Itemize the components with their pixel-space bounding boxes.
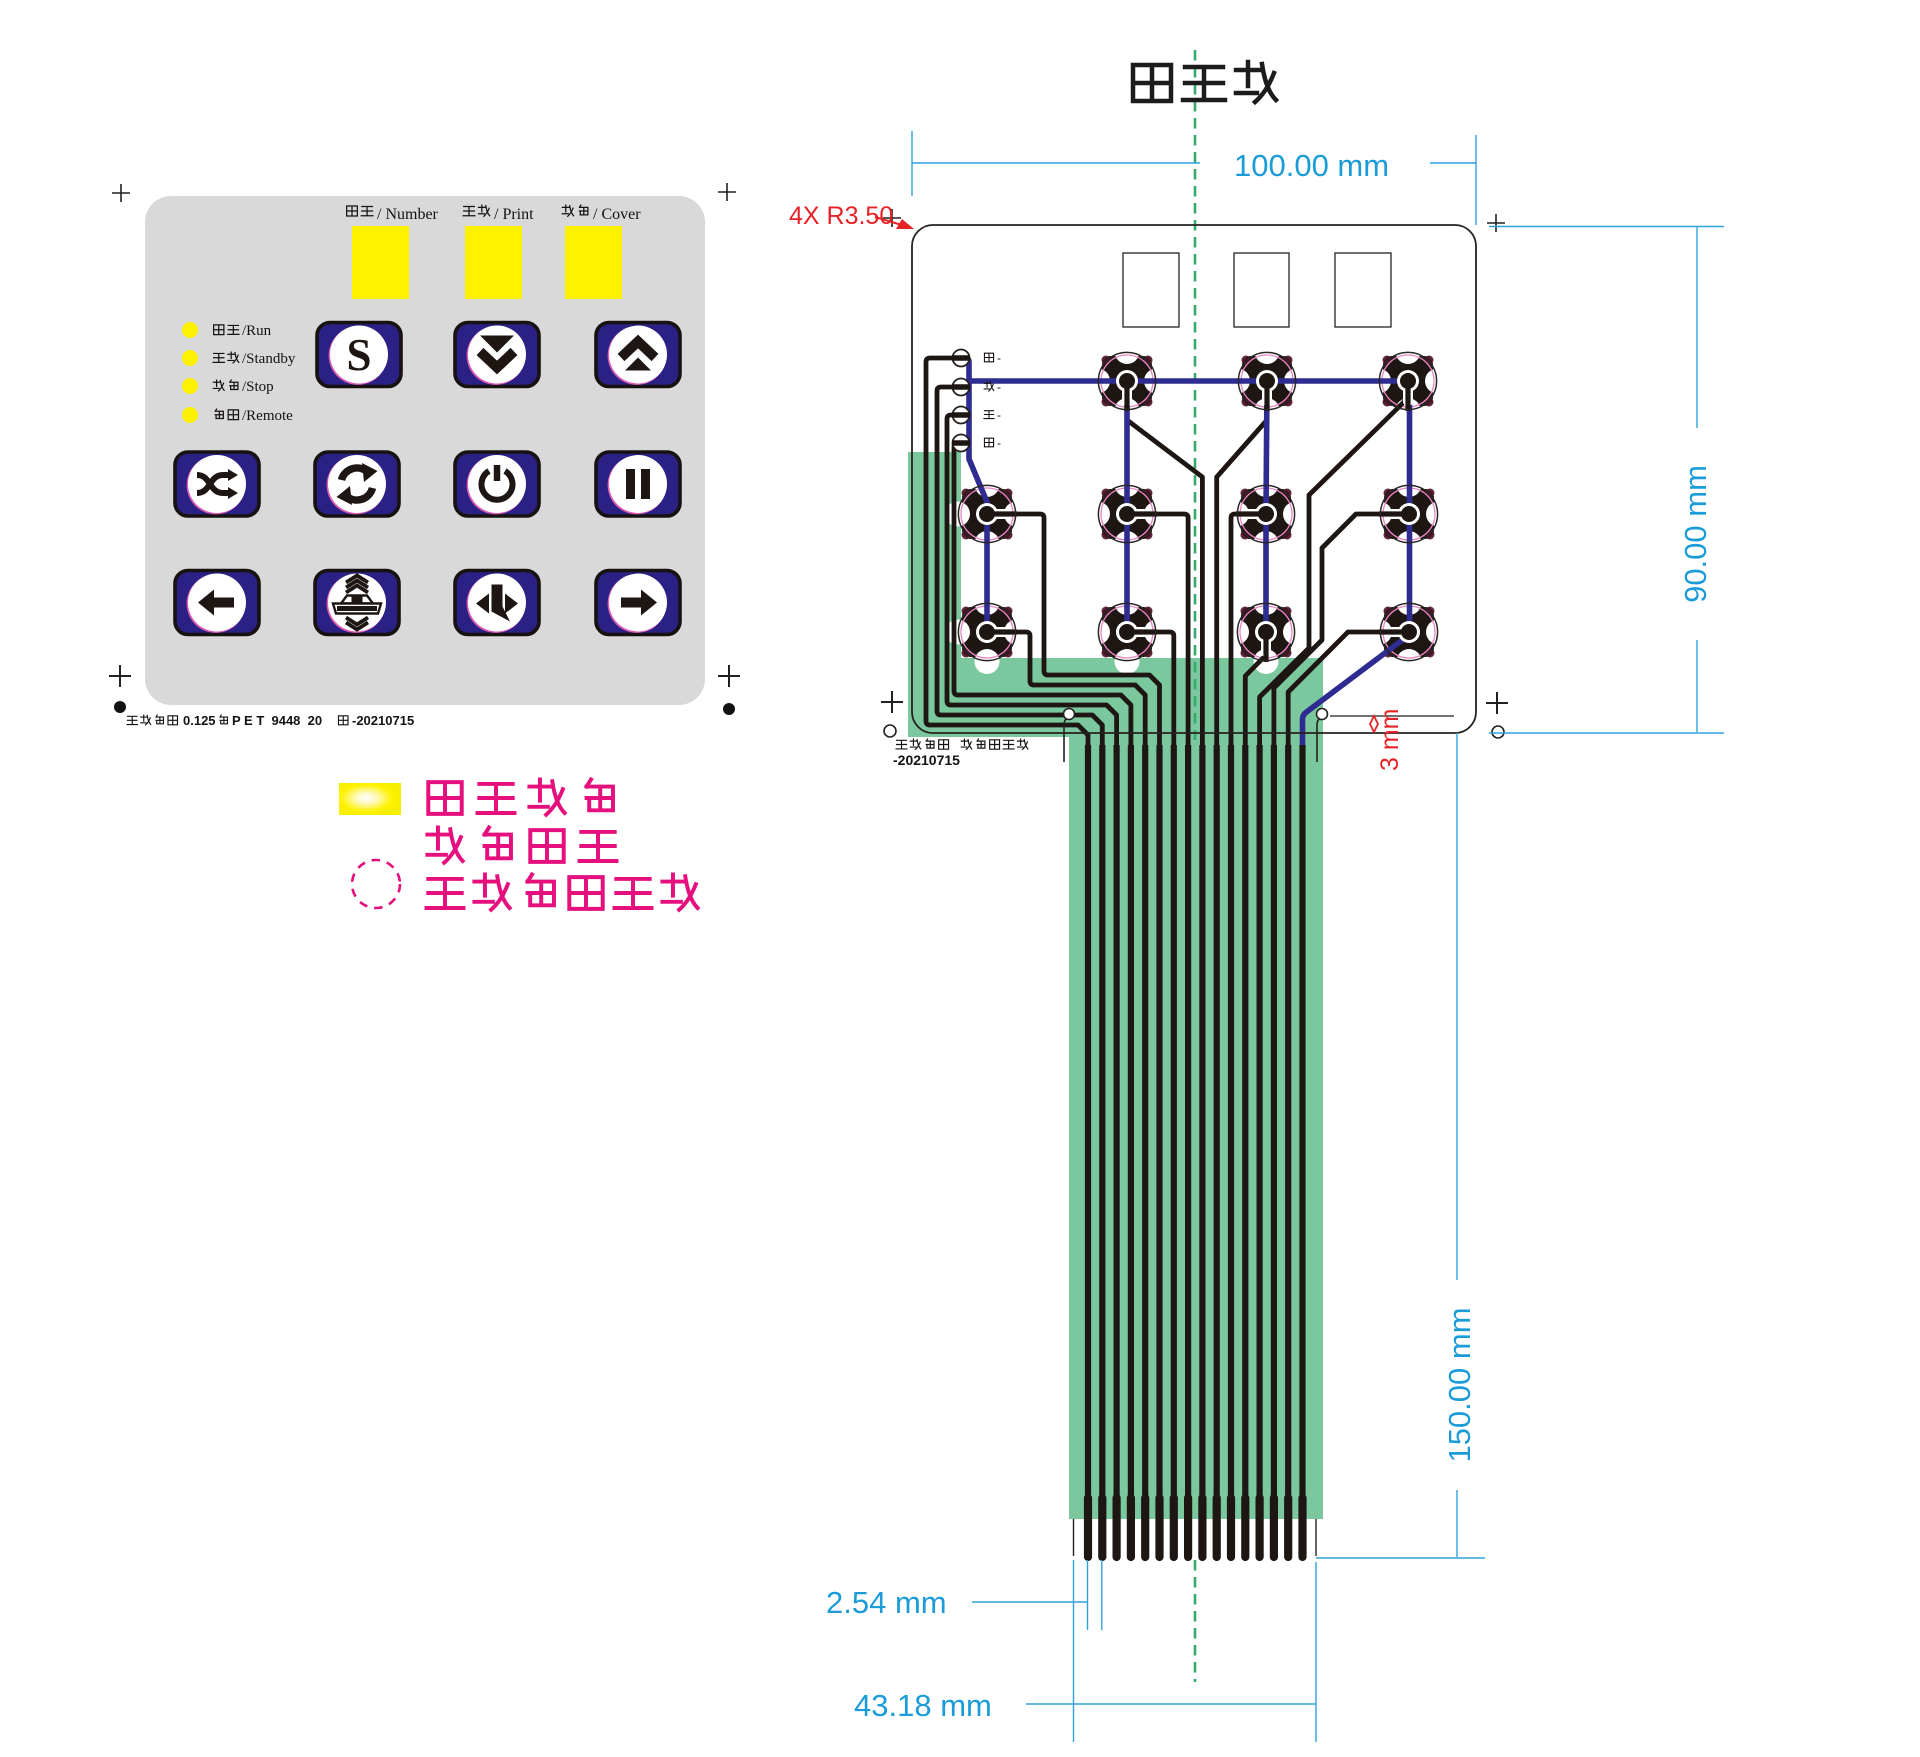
svg-text:-20210715: -20210715 xyxy=(352,713,414,728)
svg-text:/ Print: / Print xyxy=(494,206,534,223)
svg-text:-20210715: -20210715 xyxy=(893,752,960,768)
svg-text:/Run: /Run xyxy=(242,323,272,339)
svg-text:3 mm: 3 mm xyxy=(1376,709,1404,772)
svg-text:43.18 mm: 43.18 mm xyxy=(854,1688,992,1723)
svg-text:2.54 mm: 2.54 mm xyxy=(826,1585,947,1620)
svg-text:-: - xyxy=(997,351,1001,365)
svg-text:-: - xyxy=(997,436,1001,450)
svg-text:90.00 mm: 90.00 mm xyxy=(1678,465,1713,603)
svg-text:/ Number: / Number xyxy=(377,206,439,223)
svg-text:/ Cover: / Cover xyxy=(593,206,641,223)
svg-text:P E T 9448 20: P E T 9448 20 xyxy=(232,713,322,728)
svg-text:0.125: 0.125 xyxy=(183,713,216,728)
svg-text:150.00 mm: 150.00 mm xyxy=(1442,1307,1477,1462)
svg-text:/Stop: /Stop xyxy=(242,379,274,395)
svg-text:-: - xyxy=(997,380,1001,394)
svg-text:-: - xyxy=(997,408,1001,422)
svg-text:100.00 mm: 100.00 mm xyxy=(1234,148,1389,183)
svg-text:/Standby: /Standby xyxy=(242,351,296,367)
svg-text:/Remote: /Remote xyxy=(242,408,293,424)
svg-text:S: S xyxy=(346,330,371,380)
svg-text:4X R3.50: 4X R3.50 xyxy=(789,202,893,230)
